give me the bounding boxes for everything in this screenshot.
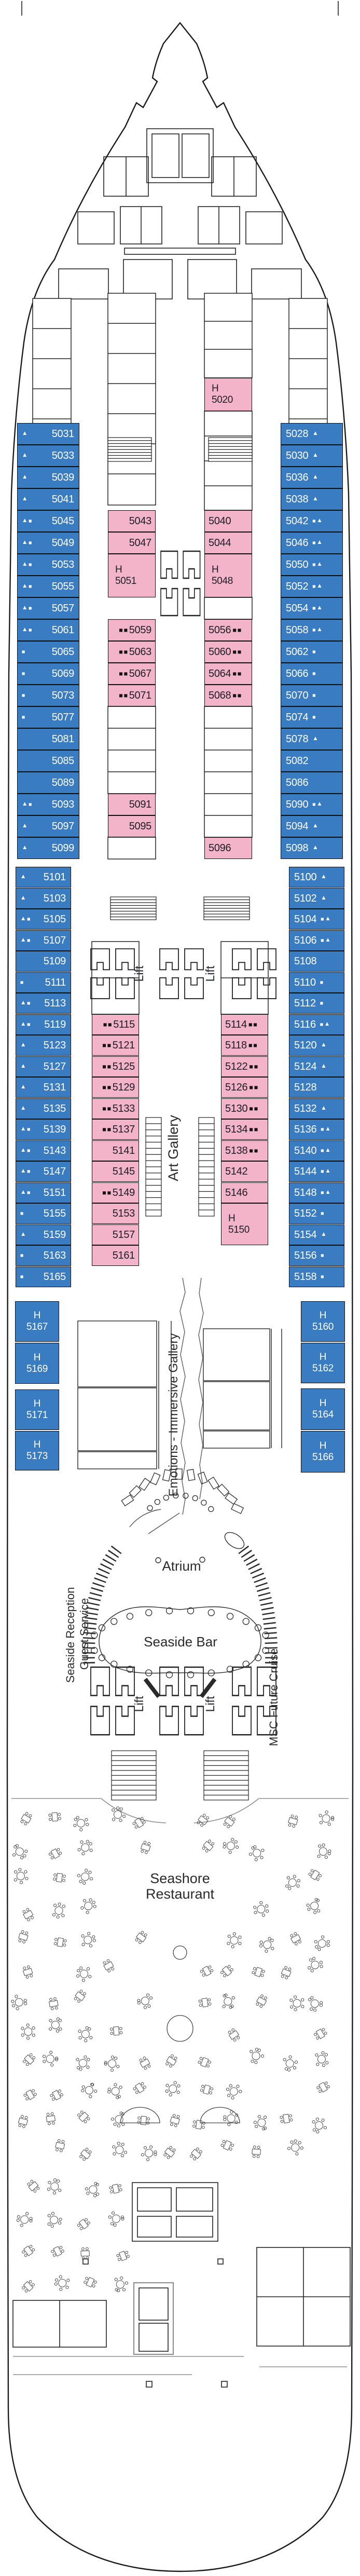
cabin-number: 5157 bbox=[113, 1230, 135, 1240]
cabin-number: 5095 bbox=[129, 821, 151, 832]
square-icon: ■ bbox=[321, 938, 324, 944]
cabin-5158[interactable]: 5158■ bbox=[289, 1266, 344, 1287]
cabin-number: 5061 bbox=[52, 625, 74, 635]
cabin-5103[interactable]: ▲5103 bbox=[16, 888, 71, 909]
square-icon: ■ bbox=[238, 671, 241, 677]
square-icon: ■ bbox=[20, 1274, 23, 1280]
cabin-5153[interactable]: 5153 bbox=[92, 1203, 139, 1224]
cabin-number: 5055 bbox=[52, 581, 74, 592]
cabin-5061[interactable]: ▲■5061 bbox=[17, 619, 79, 641]
triangle-icon: ▲ bbox=[316, 583, 322, 590]
cabin-5104[interactable]: 5104■▲ bbox=[289, 909, 344, 930]
square-icon: ■ bbox=[22, 649, 25, 655]
cabin-5044[interactable]: 5044 bbox=[204, 532, 252, 554]
cabin-number: 5077 bbox=[52, 712, 74, 723]
cabin-5119[interactable]: ▲■5119 bbox=[16, 1014, 71, 1035]
cabin-5128[interactable]: 5128 bbox=[289, 1077, 344, 1098]
triangle-icon: ▲ bbox=[22, 627, 27, 633]
cabin-icons: ■ bbox=[321, 1274, 324, 1280]
cabin-icons: ■■ bbox=[119, 692, 128, 699]
cabin-5135[interactable]: ▲5135 bbox=[16, 1098, 71, 1119]
cabin-5113[interactable]: ▲■5113 bbox=[16, 993, 71, 1014]
cabin-5125[interactable]: ■■5125 bbox=[92, 1056, 139, 1077]
cabin-5137[interactable]: ■■5137 bbox=[92, 1119, 139, 1140]
cabin-5122[interactable]: 5122■■ bbox=[221, 1056, 268, 1077]
cabin-icons: ■▲ bbox=[321, 1168, 330, 1175]
cabin-number: 5101 bbox=[44, 872, 66, 882]
cabin-5102[interactable]: 5102▲ bbox=[289, 888, 344, 909]
square-icon: ■ bbox=[102, 1190, 106, 1196]
cabin-5118[interactable]: 5118■■ bbox=[221, 1035, 268, 1056]
cabin-5127[interactable]: ▲5127 bbox=[16, 1056, 71, 1077]
cabin-5069[interactable]: ■5069 bbox=[17, 663, 79, 685]
cabin-5074[interactable]: 5074■ bbox=[281, 706, 343, 728]
square-icon: ■ bbox=[29, 562, 32, 568]
cabin-5146[interactable]: 5146 bbox=[221, 1182, 268, 1203]
cabin-5173[interactable]: H5173 bbox=[15, 1431, 59, 1470]
cabin-5077[interactable]: ■5077 bbox=[17, 706, 79, 728]
cabin-5060[interactable]: 5060■■ bbox=[204, 641, 252, 663]
cabin-5038[interactable]: 5038▲ bbox=[281, 488, 343, 510]
cabin-5043[interactable]: 5043 bbox=[108, 510, 156, 532]
cabin-5098[interactable]: 5098▲ bbox=[281, 837, 343, 859]
cabin-number: 5156 bbox=[294, 1250, 316, 1261]
cabin-number: 5152 bbox=[294, 1208, 316, 1219]
square-icon: ■ bbox=[119, 671, 122, 677]
square-icon: ■ bbox=[102, 1126, 106, 1133]
cabin-5108[interactable]: 5108 bbox=[289, 951, 344, 972]
triangle-icon: ▲ bbox=[312, 736, 318, 742]
cabin-5091[interactable]: 5091 bbox=[108, 794, 156, 815]
cabin-number: 5143 bbox=[44, 1146, 66, 1156]
square-icon: ■ bbox=[321, 1127, 324, 1133]
cabin-5085[interactable]: 5085 bbox=[17, 750, 79, 772]
h-cabin-prefix: H bbox=[34, 1439, 40, 1451]
cabin-number: 5069 bbox=[52, 669, 74, 679]
cabin-icons: ▲ bbox=[321, 874, 326, 880]
cabin-number: 5044 bbox=[209, 538, 231, 548]
cabin-number: 5040 bbox=[209, 516, 231, 526]
cabin-icons: ■▲ bbox=[312, 627, 322, 633]
cabin-number: 5159 bbox=[44, 1230, 66, 1240]
cabin-5030[interactable]: 5030▲ bbox=[281, 445, 343, 467]
cabin-number: 5121 bbox=[113, 1040, 135, 1051]
cabin-5151[interactable]: ▲■5151 bbox=[16, 1182, 71, 1203]
cabin-layer: ▲5031▲5033▲5039▲5041▲■5045▲■5049▲■5053▲■… bbox=[0, 0, 360, 2576]
cabin-icons: ▲■ bbox=[20, 1148, 30, 1154]
cabin-number: 5123 bbox=[44, 1040, 66, 1051]
cabin-5140[interactable]: 5140■▲ bbox=[289, 1140, 344, 1161]
cabin-number: 5030 bbox=[286, 451, 308, 461]
triangle-icon: ▲ bbox=[22, 474, 27, 481]
square-icon: ■ bbox=[123, 649, 127, 656]
cabin-icons: ▲ bbox=[22, 823, 27, 829]
cabin-number: 5066 bbox=[286, 669, 308, 679]
square-icon: ■ bbox=[107, 1106, 110, 1112]
square-icon: ■ bbox=[27, 1022, 30, 1028]
cabin-number: 5133 bbox=[113, 1103, 135, 1114]
square-icon: ■ bbox=[312, 802, 315, 808]
square-icon: ■ bbox=[123, 692, 127, 699]
cabin-number: 5065 bbox=[52, 647, 74, 657]
square-icon: ■ bbox=[321, 1274, 324, 1280]
cabin-number: 5167 bbox=[26, 1321, 48, 1333]
cabin-5064[interactable]: 5064■■ bbox=[204, 663, 252, 685]
triangle-icon: ▲ bbox=[22, 518, 27, 524]
cabin-5053[interactable]: ▲■5053 bbox=[17, 554, 79, 576]
cabin-5143[interactable]: ▲■5143 bbox=[16, 1140, 71, 1161]
cabin-number: 5147 bbox=[44, 1166, 66, 1177]
cabin-number: 5135 bbox=[44, 1103, 66, 1114]
square-icon: ■ bbox=[29, 540, 32, 546]
cabin-number: 5169 bbox=[26, 1364, 48, 1375]
cabin-5039[interactable]: ▲5039 bbox=[17, 467, 79, 488]
cabin-5070[interactable]: 5070■ bbox=[281, 685, 343, 706]
cabin-5096[interactable]: 5096 bbox=[204, 837, 252, 859]
cabin-5065[interactable]: ■5065 bbox=[17, 641, 79, 663]
triangle-icon: ▲ bbox=[22, 496, 27, 502]
cabin-5066[interactable]: 5066■ bbox=[281, 663, 343, 685]
square-icon: ■ bbox=[253, 1021, 257, 1028]
cabin-number: 5132 bbox=[294, 1103, 316, 1114]
cabin-number: 5086 bbox=[286, 778, 308, 788]
cabin-number: 5122 bbox=[225, 1061, 247, 1072]
cabin-5040[interactable]: 5040 bbox=[204, 510, 252, 532]
cabin-5041[interactable]: ▲5041 bbox=[17, 488, 79, 510]
square-icon: ■ bbox=[321, 1148, 324, 1154]
cabin-icons: ■ bbox=[320, 980, 323, 986]
cabin-number: 5153 bbox=[113, 1208, 135, 1219]
cabin-5116[interactable]: 5116■▲ bbox=[289, 1014, 344, 1035]
cabin-5120[interactable]: 5120▲ bbox=[289, 1035, 344, 1056]
square-icon: ■ bbox=[312, 628, 315, 633]
cabin-icons: ■ bbox=[22, 693, 25, 699]
cabin-5144[interactable]: 5144■▲ bbox=[289, 1161, 344, 1182]
cabin-icons: ■■ bbox=[102, 1042, 111, 1049]
cabin-5162[interactable]: H5162 bbox=[301, 1343, 345, 1383]
square-icon: ■ bbox=[107, 1190, 110, 1196]
triangle-icon: ▲ bbox=[321, 1064, 326, 1070]
cabin-icons: ■■ bbox=[119, 671, 128, 677]
cabin-icons: ■▲ bbox=[321, 937, 330, 944]
cabin-5097[interactable]: ▲5097 bbox=[17, 815, 79, 837]
cabin-number: 5046 bbox=[286, 538, 308, 548]
cabin-number: 5162 bbox=[312, 1363, 334, 1374]
triangle-icon: ▲ bbox=[22, 583, 27, 590]
cabin-5171[interactable]: H5171 bbox=[15, 1389, 59, 1430]
triangle-icon: ▲ bbox=[20, 1232, 26, 1238]
cabin-5142[interactable]: 5142 bbox=[221, 1161, 268, 1182]
cabin-5071[interactable]: ■■5071 bbox=[108, 685, 156, 706]
cabin-number: 5049 bbox=[52, 538, 74, 548]
cabin-5107[interactable]: ▲■5107 bbox=[16, 930, 71, 951]
cabin-5058[interactable]: 5058■▲ bbox=[281, 619, 343, 641]
square-icon: ■ bbox=[123, 627, 127, 634]
square-icon: ■ bbox=[312, 693, 315, 699]
square-icon: ■ bbox=[27, 1169, 30, 1175]
cabin-icons: ▲■ bbox=[22, 583, 32, 590]
cabin-5054[interactable]: 5054■▲ bbox=[281, 597, 343, 619]
cabin-5156[interactable]: 5156■ bbox=[289, 1245, 344, 1266]
square-icon: ■ bbox=[320, 980, 323, 986]
cabin-5105[interactable]: ▲■5105 bbox=[16, 909, 71, 930]
cabin-number: 5074 bbox=[286, 712, 308, 723]
cabin-5115[interactable]: ■■5115 bbox=[92, 1014, 139, 1035]
square-icon: ■ bbox=[253, 1042, 257, 1049]
square-icon: ■ bbox=[22, 693, 25, 699]
triangle-icon: ▲ bbox=[20, 1084, 26, 1091]
cabin-5165[interactable]: ■5165 bbox=[16, 1266, 71, 1287]
cabin-icons: ▲■ bbox=[22, 540, 32, 546]
cabin-5057[interactable]: ▲■5057 bbox=[17, 597, 79, 619]
cabin-5042[interactable]: 5042■▲ bbox=[281, 510, 343, 532]
cabin-icons: ■■ bbox=[102, 1064, 111, 1070]
cabin-5114[interactable]: 5114■■ bbox=[221, 1014, 268, 1035]
cabin-5090[interactable]: 5090■▲ bbox=[281, 794, 343, 815]
cabin-5150[interactable]: H5150 bbox=[221, 1203, 268, 1245]
cabin-5161[interactable]: 5161 bbox=[92, 1245, 139, 1266]
cabin-5082[interactable]: 5082 bbox=[281, 750, 343, 772]
cabin-icons: ▲■ bbox=[22, 518, 32, 524]
cabin-number: 5126 bbox=[225, 1082, 247, 1093]
cabin-icons: ▲■ bbox=[20, 916, 30, 922]
square-icon: ■ bbox=[27, 1148, 30, 1154]
cabin-icons: ■■ bbox=[102, 1106, 111, 1112]
cabin-5133[interactable]: ■■5133 bbox=[92, 1098, 139, 1119]
cabin-icons: ■▲ bbox=[312, 801, 322, 808]
cabin-number: 5114 bbox=[225, 1019, 247, 1030]
cabin-number: 5104 bbox=[294, 914, 316, 924]
cabin-icons: ■ bbox=[22, 671, 25, 677]
square-icon: ■ bbox=[232, 692, 236, 699]
cabin-icons: ■ bbox=[20, 980, 23, 986]
cabin-icons: ■▲ bbox=[321, 916, 330, 922]
triangle-icon: ▲ bbox=[325, 1168, 330, 1175]
square-icon: ■ bbox=[321, 1211, 324, 1217]
cabin-5099[interactable]: ▲5099 bbox=[17, 837, 79, 859]
cabin-5067[interactable]: ■■5067 bbox=[108, 663, 156, 685]
square-icon: ■ bbox=[249, 1084, 253, 1091]
cabin-5130[interactable]: 5130■■ bbox=[221, 1098, 268, 1119]
square-icon: ■ bbox=[312, 519, 315, 524]
square-icon: ■ bbox=[29, 802, 32, 808]
square-icon: ■ bbox=[102, 1042, 106, 1049]
cabin-number: 5134 bbox=[225, 1124, 247, 1135]
cabin-number: 5108 bbox=[294, 956, 316, 966]
cabin-5051[interactable]: H5051 bbox=[108, 554, 156, 597]
cabin-5145[interactable]: 5145 bbox=[92, 1161, 139, 1182]
square-icon: ■ bbox=[102, 1064, 106, 1070]
cabin-5123[interactable]: ▲5123 bbox=[16, 1035, 71, 1056]
cabin-icons: ■▲ bbox=[312, 540, 322, 546]
cabin-number: 5144 bbox=[294, 1166, 316, 1177]
cabin-5028[interactable]: 5028▲ bbox=[281, 423, 343, 445]
cabin-5131[interactable]: ▲5131 bbox=[16, 1077, 71, 1098]
cabin-icons: ■▲ bbox=[312, 583, 322, 590]
cabin-5155[interactable]: ■5155 bbox=[16, 1203, 71, 1224]
cabin-5050[interactable]: 5050■▲ bbox=[281, 554, 343, 576]
cabin-number: 5058 bbox=[286, 625, 308, 635]
cabin-number: 5173 bbox=[26, 1451, 48, 1462]
cabin-5093[interactable]: ▲■5093 bbox=[17, 794, 79, 815]
cabin-number: 5128 bbox=[294, 1082, 316, 1093]
cabin-5052[interactable]: 5052■▲ bbox=[281, 576, 343, 597]
cabin-icons: ▲ bbox=[312, 474, 318, 481]
cabin-5081[interactable]: 5081 bbox=[17, 728, 79, 750]
cabin-5110[interactable]: 5110■ bbox=[289, 972, 344, 993]
cabin-5089[interactable]: 5089 bbox=[17, 772, 79, 794]
cabin-5111[interactable]: ■5111 bbox=[16, 972, 71, 993]
cabin-5063[interactable]: ■■5063 bbox=[108, 641, 156, 663]
cabin-5134[interactable]: 5134■■ bbox=[221, 1119, 268, 1140]
square-icon: ■ bbox=[249, 1126, 253, 1133]
cabin-icons: ■ bbox=[312, 693, 315, 699]
cabin-5020[interactable]: H5020 bbox=[204, 378, 252, 411]
cabin-number: 5113 bbox=[44, 998, 66, 1008]
cabin-5126[interactable]: 5126■■ bbox=[221, 1077, 268, 1098]
cabin-icons: ■ bbox=[320, 1001, 323, 1006]
cabin-number: 5045 bbox=[52, 516, 74, 526]
cabin-5062[interactable]: 5062■ bbox=[281, 641, 343, 663]
cabin-icons: ■▲ bbox=[321, 1190, 330, 1196]
cabin-5112[interactable]: 5112■ bbox=[289, 993, 344, 1014]
cabin-icons: ▲ bbox=[20, 1106, 26, 1112]
cabin-number: 5158 bbox=[294, 1272, 316, 1282]
cabin-5160[interactable]: H5160 bbox=[301, 1301, 345, 1342]
cabin-5147[interactable]: ▲■5147 bbox=[16, 1161, 71, 1182]
cabin-icons: ■■ bbox=[249, 1064, 258, 1070]
triangle-icon: ▲ bbox=[312, 453, 318, 459]
h-cabin-prefix: H bbox=[320, 1310, 326, 1321]
triangle-icon: ▲ bbox=[321, 874, 326, 880]
cabin-5121[interactable]: ■■5121 bbox=[92, 1035, 139, 1056]
cabin-5169[interactable]: H5169 bbox=[15, 1343, 59, 1384]
cabin-icons: ■■ bbox=[249, 1106, 258, 1112]
cabin-5152[interactable]: 5152■ bbox=[289, 1203, 344, 1224]
cabin-5141[interactable]: 5141 bbox=[92, 1140, 139, 1161]
cabin-number: 5102 bbox=[294, 893, 316, 904]
cabin-5049[interactable]: ▲■5049 bbox=[17, 532, 79, 554]
h-cabin-prefix: H bbox=[212, 564, 218, 576]
square-icon: ■ bbox=[232, 649, 236, 656]
square-icon: ■ bbox=[29, 606, 32, 611]
cabin-5149[interactable]: ■■5149 bbox=[92, 1182, 139, 1203]
square-icon: ■ bbox=[232, 671, 236, 677]
cabin-5033[interactable]: ▲5033 bbox=[17, 445, 79, 467]
cabin-5100[interactable]: 5100▲ bbox=[289, 867, 344, 888]
cabin-number: 5150 bbox=[228, 1224, 250, 1236]
cabin-5166[interactable]: H5166 bbox=[301, 1431, 345, 1473]
cabin-icons: ▲■ bbox=[20, 1126, 30, 1133]
cabin-5056[interactable]: 5056■■ bbox=[204, 619, 252, 641]
cabin-icons: ▲ bbox=[20, 1084, 26, 1091]
cabin-5036[interactable]: 5036▲ bbox=[281, 467, 343, 488]
cabin-icons: ▲■ bbox=[20, 1000, 30, 1006]
cabin-5047[interactable]: 5047 bbox=[108, 532, 156, 554]
cabin-icons: ■ bbox=[321, 1211, 324, 1217]
cabin-5109[interactable]: 5109 bbox=[16, 951, 71, 972]
cabin-number: 5099 bbox=[52, 843, 74, 853]
square-icon: ■ bbox=[20, 1211, 23, 1217]
cabin-icons: ■▲ bbox=[312, 562, 322, 568]
cabin-icons: ▲■ bbox=[20, 1021, 30, 1028]
cabin-5095[interactable]: 5095 bbox=[108, 815, 156, 837]
cabin-number: 5062 bbox=[286, 647, 308, 657]
cabin-5164[interactable]: H5164 bbox=[301, 1388, 345, 1430]
cabin-5132[interactable]: 5132▲ bbox=[289, 1098, 344, 1119]
cabin-5086[interactable]: 5086 bbox=[281, 772, 343, 794]
triangle-icon: ▲ bbox=[325, 1190, 330, 1196]
cabin-icons: ■■ bbox=[119, 627, 128, 634]
cabin-5136[interactable]: 5136■▲ bbox=[289, 1119, 344, 1140]
cabin-5163[interactable]: ■5163 bbox=[16, 1245, 71, 1266]
cabin-5045[interactable]: ▲■5045 bbox=[17, 510, 79, 532]
cabin-icons: ■▲ bbox=[320, 1021, 330, 1028]
cabin-number: 5116 bbox=[294, 1019, 316, 1030]
cabin-5167[interactable]: H5167 bbox=[15, 1301, 59, 1342]
cabin-number: 5063 bbox=[129, 647, 151, 657]
cabin-icons: ▲■ bbox=[20, 1190, 30, 1196]
cabin-5059[interactable]: ■■5059 bbox=[108, 619, 156, 641]
square-icon: ■ bbox=[238, 627, 241, 634]
triangle-icon: ▲ bbox=[20, 1126, 26, 1133]
triangle-icon: ▲ bbox=[316, 801, 322, 808]
cabin-5124[interactable]: 5124▲ bbox=[289, 1056, 344, 1077]
cabin-icons: ■■ bbox=[232, 692, 241, 699]
cabin-icons: ■■ bbox=[102, 1190, 111, 1196]
cabin-5078[interactable]: 5078▲ bbox=[281, 728, 343, 750]
cabin-number: 5091 bbox=[129, 799, 151, 810]
cabin-5154[interactable]: 5154▲ bbox=[289, 1224, 344, 1245]
cabin-number: 5059 bbox=[129, 625, 151, 635]
cabin-5106[interactable]: 5106■▲ bbox=[289, 930, 344, 951]
cabin-number: 5148 bbox=[294, 1188, 316, 1198]
cabin-5139[interactable]: ▲■5139 bbox=[16, 1119, 71, 1140]
cabin-5157[interactable]: 5157 bbox=[92, 1224, 139, 1245]
cabin-number: 5106 bbox=[294, 935, 316, 946]
square-icon: ■ bbox=[320, 1022, 323, 1028]
square-icon: ■ bbox=[312, 584, 315, 590]
deck-plan: LiftLiftArt GalleryEmotions - Immersive … bbox=[0, 0, 360, 2576]
cabin-5101[interactable]: ▲5101 bbox=[16, 867, 71, 888]
cabin-5048[interactable]: H5048 bbox=[204, 554, 252, 597]
cabin-icons: ■■ bbox=[249, 1084, 258, 1091]
cabin-5046[interactable]: 5046■▲ bbox=[281, 532, 343, 554]
square-icon: ■ bbox=[108, 1021, 112, 1028]
cabin-5094[interactable]: 5094▲ bbox=[281, 815, 343, 837]
cabin-number: 5051 bbox=[115, 576, 136, 587]
cabin-number: 5164 bbox=[312, 1409, 334, 1421]
cabin-5129[interactable]: ■■5129 bbox=[92, 1077, 139, 1098]
triangle-icon: ▲ bbox=[20, 916, 26, 922]
cabin-number: 5146 bbox=[225, 1188, 247, 1198]
cabin-5073[interactable]: ■5073 bbox=[17, 685, 79, 706]
cabin-5068[interactable]: 5068■■ bbox=[204, 685, 252, 706]
cabin-number: 5081 bbox=[52, 734, 74, 744]
cabin-5138[interactable]: 5138■■ bbox=[221, 1140, 268, 1161]
cabin-5031[interactable]: ▲5031 bbox=[17, 423, 79, 445]
triangle-icon: ▲ bbox=[22, 823, 27, 829]
cabin-icons: ▲■ bbox=[20, 1168, 30, 1175]
cabin-icons: ■■ bbox=[103, 1021, 112, 1028]
cabin-number: 5124 bbox=[294, 1061, 316, 1072]
cabin-5055[interactable]: ▲■5055 bbox=[17, 576, 79, 597]
cabin-number: 5115 bbox=[113, 1019, 135, 1030]
cabin-5159[interactable]: ▲5159 bbox=[16, 1224, 71, 1245]
cabin-5148[interactable]: 5148■▲ bbox=[289, 1182, 344, 1203]
triangle-icon: ▲ bbox=[312, 474, 318, 481]
cabin-number: 5161 bbox=[113, 1250, 135, 1261]
